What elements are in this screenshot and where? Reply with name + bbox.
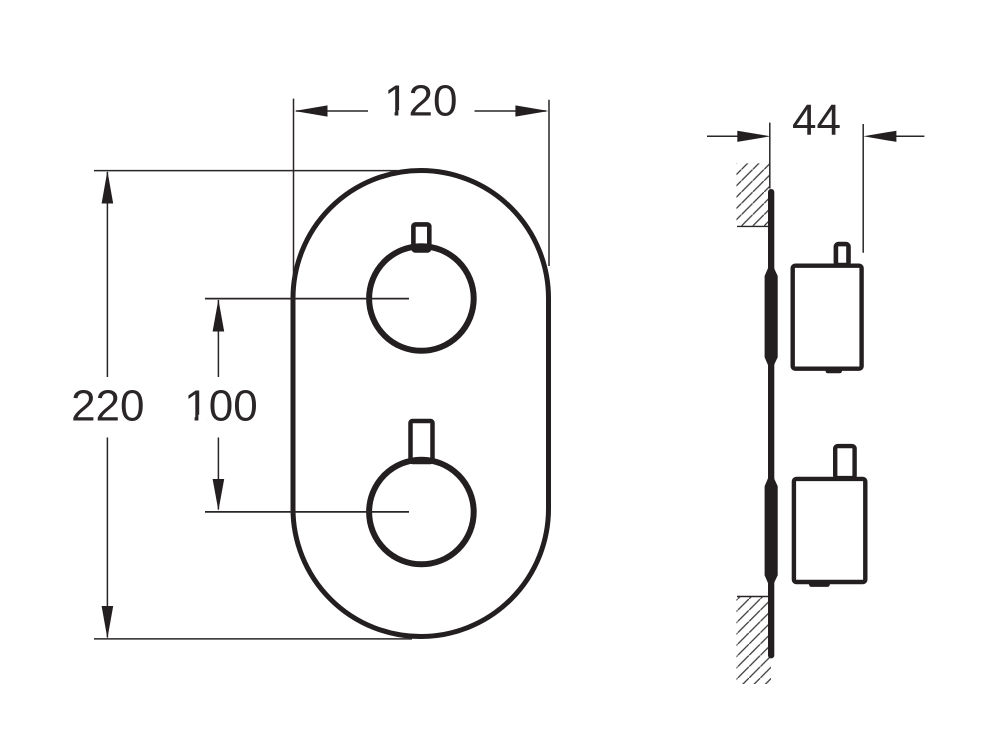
svg-text:100: 100 xyxy=(184,381,257,430)
svg-text:220: 220 xyxy=(71,381,144,430)
svg-text:44: 44 xyxy=(792,96,841,145)
svg-text:120: 120 xyxy=(384,77,457,126)
